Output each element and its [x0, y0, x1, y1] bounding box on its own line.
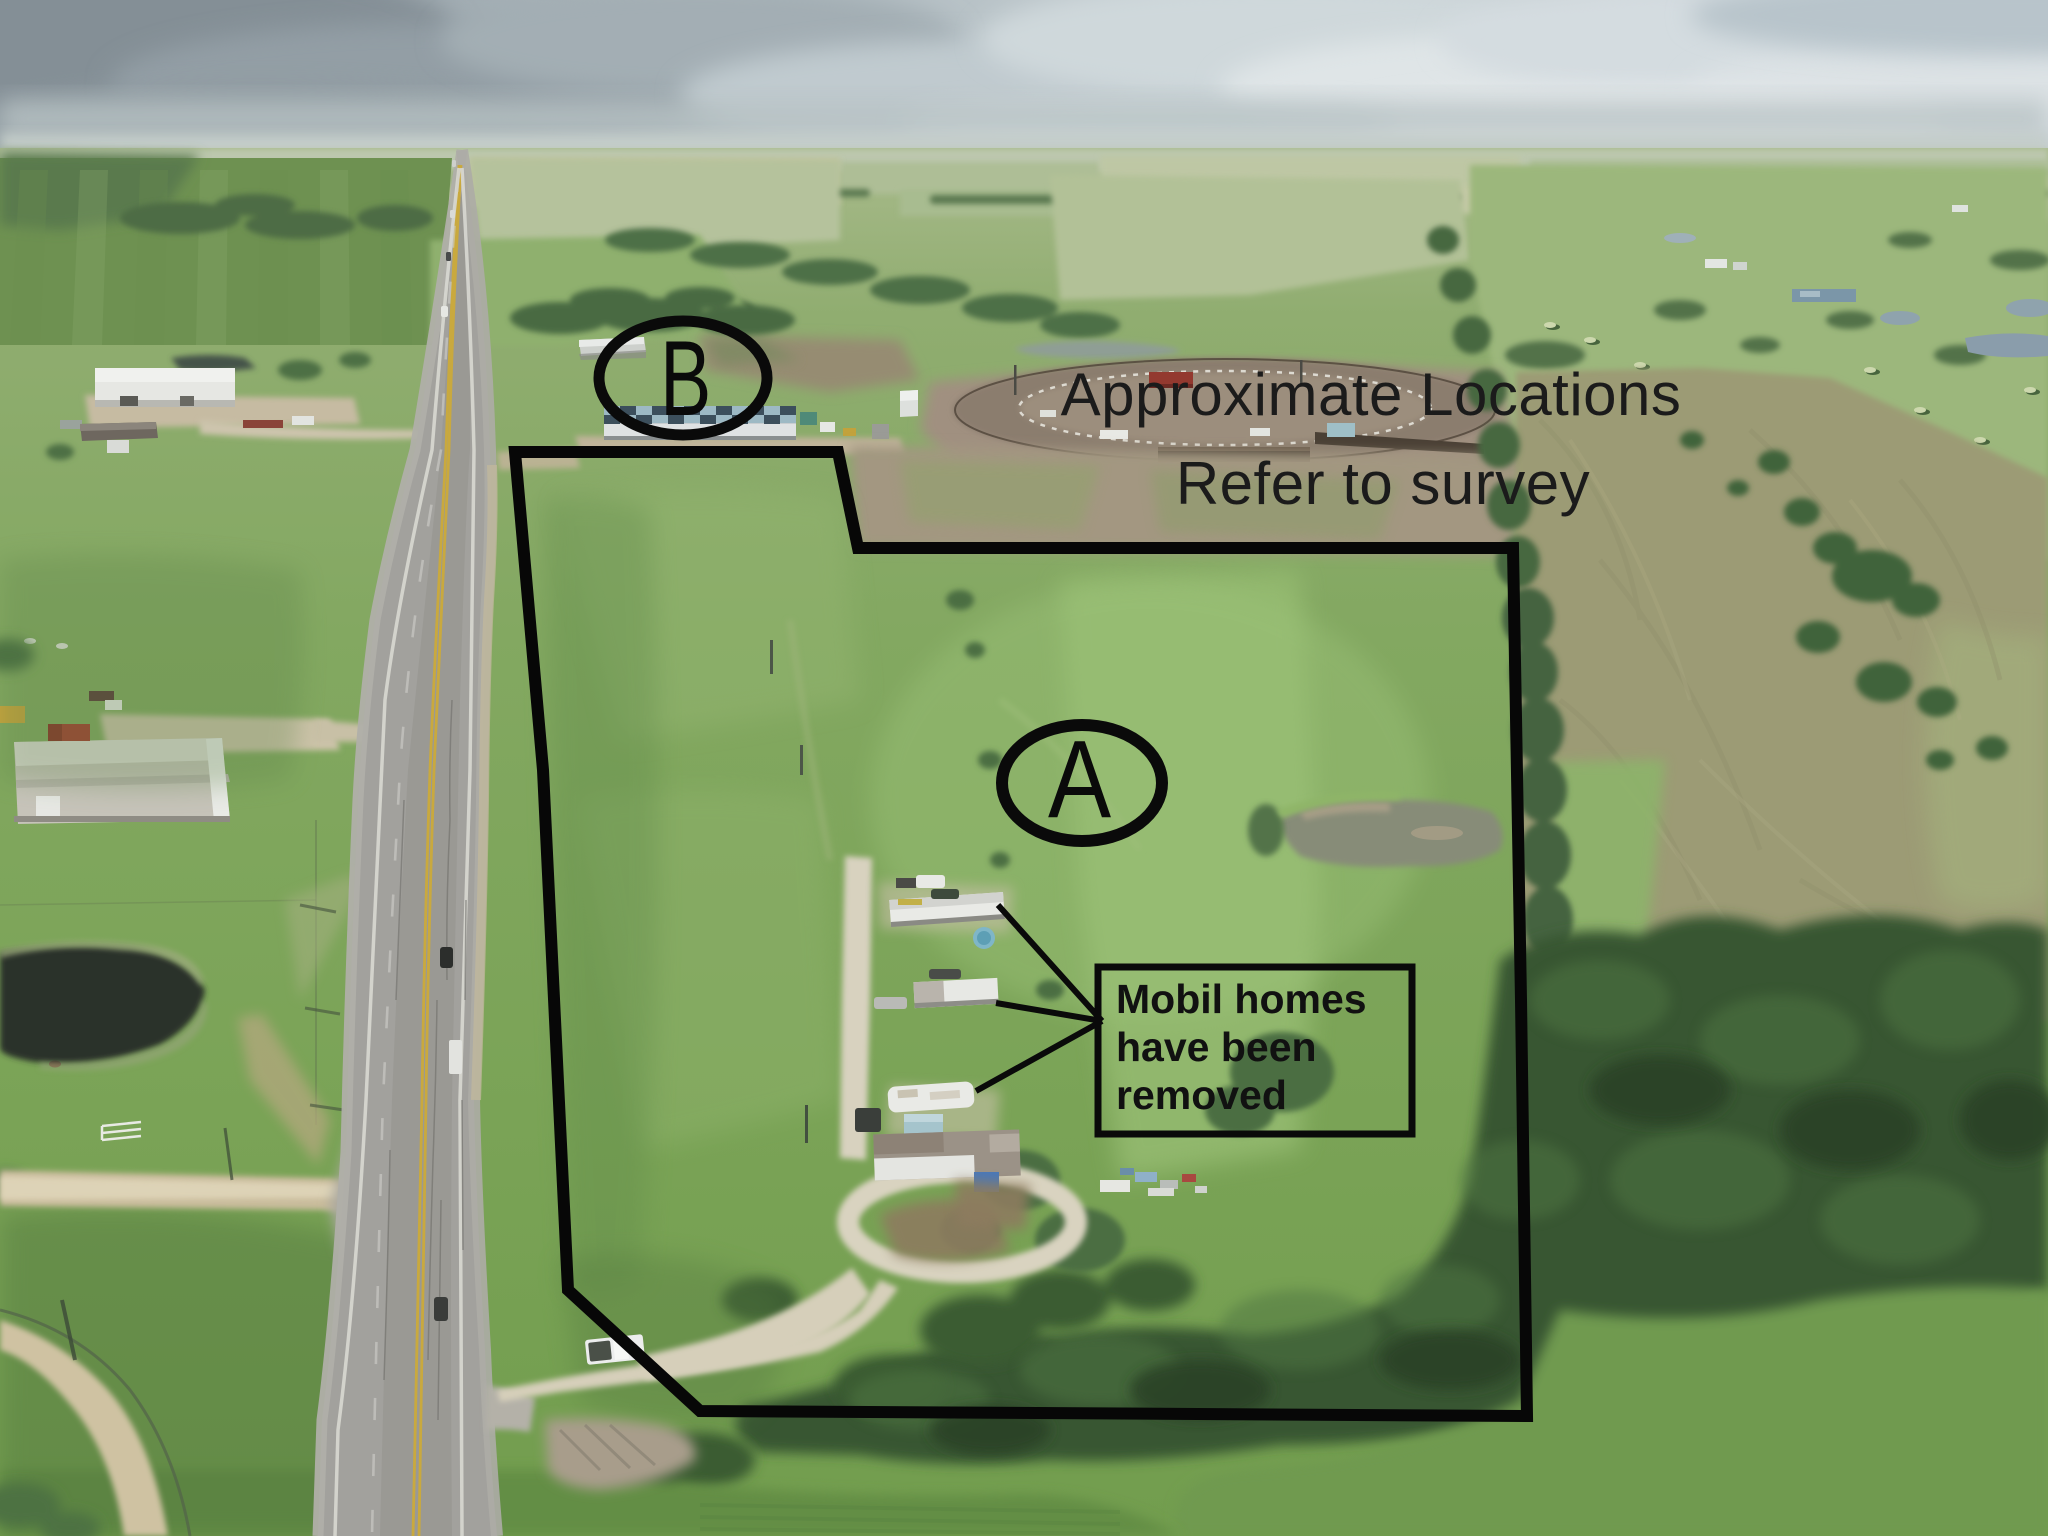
svg-text:Refer to survey: Refer to survey	[1176, 450, 1590, 517]
svg-text:have been: have been	[1116, 1024, 1317, 1070]
svg-text:removed: removed	[1116, 1072, 1287, 1118]
svg-text:B: B	[660, 319, 711, 438]
svg-text:Mobil homes: Mobil homes	[1116, 976, 1367, 1022]
svg-text:A: A	[1048, 717, 1112, 840]
svg-text:Approximate Locations: Approximate Locations	[1061, 361, 1682, 428]
